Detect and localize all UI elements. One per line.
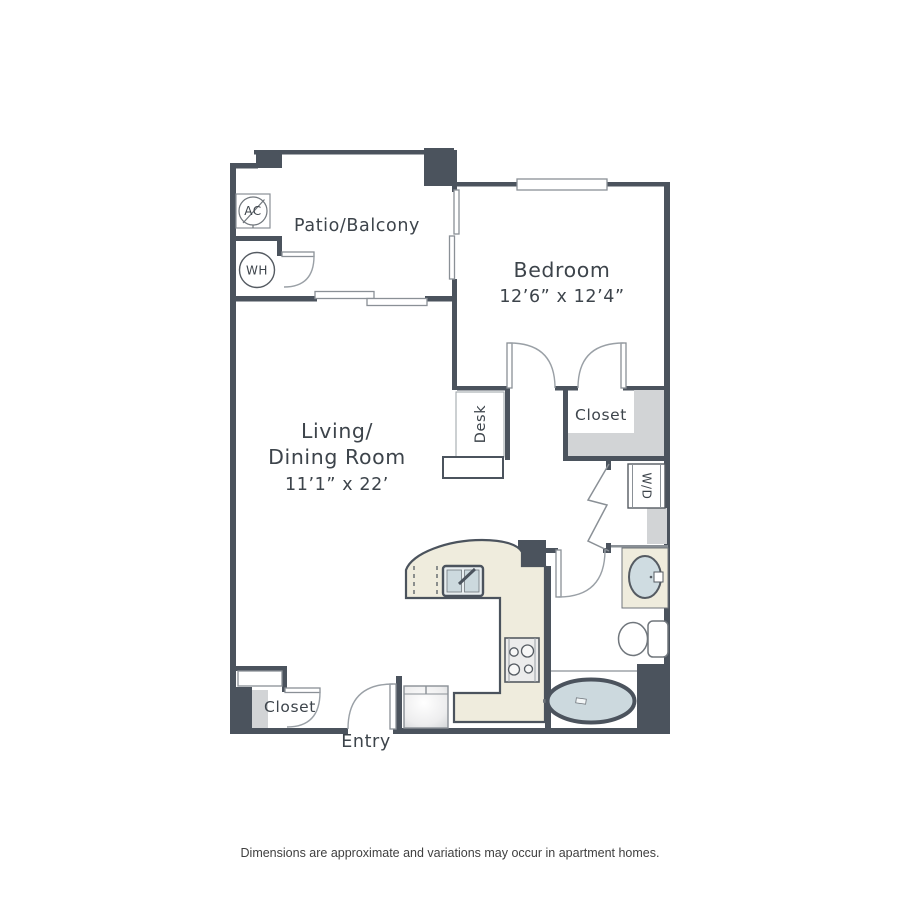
- kitchen-sink-icon: [443, 566, 483, 596]
- desk-nook-wall: [505, 388, 510, 460]
- bedroom-closet-left-wall: [563, 388, 568, 460]
- desk-label: Desk: [473, 405, 489, 443]
- refrigerator-icon: [404, 686, 448, 728]
- bedroom-label: Bedroom: [514, 258, 611, 282]
- entry-door-stub: [396, 676, 402, 730]
- wd-label: W/D: [640, 473, 654, 500]
- floor-plan-page: Patio/Balcony Bedroom 12’6” x 12’4” Livi…: [0, 0, 900, 900]
- bedroom-closet-label: Closet: [575, 406, 627, 424]
- wd-bifold-door: [588, 464, 609, 551]
- floor-plan-drawing: Patio/Balcony Bedroom 12’6” x 12’4” Livi…: [0, 0, 900, 900]
- toilet-icon: [619, 621, 669, 657]
- desk-cabinet: [443, 457, 503, 478]
- stove-icon: [505, 638, 539, 682]
- wd-shelf: [647, 508, 667, 544]
- wh-door-leaf: [282, 252, 314, 257]
- bottom-wall-left: [230, 728, 348, 734]
- bath-corner-block: [637, 664, 670, 730]
- bedroom-closet-door-swing: [578, 343, 624, 388]
- patio-corner-block-right: [424, 148, 454, 186]
- living-label-line1: Living/: [301, 419, 373, 443]
- wd-counter-divider: [611, 545, 668, 548]
- patio-sliding-panel-lower: [450, 236, 455, 279]
- bedroom-door-swing: [510, 343, 556, 388]
- bottom-wall-right: [393, 728, 670, 734]
- living-sliding-panel-right: [367, 299, 427, 306]
- bathroom-door-swing: [559, 550, 606, 597]
- bathtub-icon: [543, 680, 635, 723]
- living-dimensions: 11’1” x 22’: [285, 475, 389, 495]
- kitchen: [404, 540, 545, 728]
- entry-closet-door-leaf: [285, 688, 320, 693]
- left-wall: [230, 163, 236, 734]
- entry-closet-block: [236, 687, 252, 728]
- bedroom-closet-bottom-wall: [563, 456, 668, 461]
- bedroom-closet-door-leaf: [621, 343, 626, 388]
- wh-label: WH: [246, 264, 268, 278]
- living-label-line2: Dining Room: [268, 445, 406, 469]
- entry-door-swing: [348, 684, 393, 729]
- disclaimer-text: Dimensions are approximate and variation…: [0, 846, 900, 860]
- bedroom-bottom-wall-left: [457, 386, 510, 391]
- bathroom-door-leaf: [556, 550, 561, 597]
- patio-label: Patio/Balcony: [294, 216, 420, 236]
- bedroom-living-wall: [452, 279, 457, 390]
- patio-corner-block-left: [256, 150, 282, 168]
- bedroom-window: [517, 179, 607, 190]
- entry-door-leaf: [390, 684, 396, 729]
- bedroom-closet-shelf-right: [634, 390, 664, 434]
- living-sliding-panel-left: [315, 292, 374, 299]
- patio-sliding-panel-upper: [454, 190, 459, 234]
- patio-living-wall-left: [230, 296, 317, 302]
- bedroom-closet-shelf-bottom: [568, 433, 664, 456]
- entry-closet-top-wall: [236, 666, 287, 671]
- entry-label: Entry: [341, 732, 391, 752]
- wh-door-swing: [284, 256, 314, 287]
- entry-closet-shelf: [238, 671, 282, 686]
- bedroom-bottom-wall-right: [623, 386, 668, 391]
- entry-closet-label: Closet: [264, 698, 316, 716]
- wh-closet-stub: [277, 236, 282, 256]
- wh-closet-top-wall: [230, 236, 282, 241]
- ac-label: AC: [244, 204, 262, 218]
- bedroom-dimensions: 12’6” x 12’4”: [499, 287, 624, 307]
- bedroom-door-leaf: [507, 343, 512, 388]
